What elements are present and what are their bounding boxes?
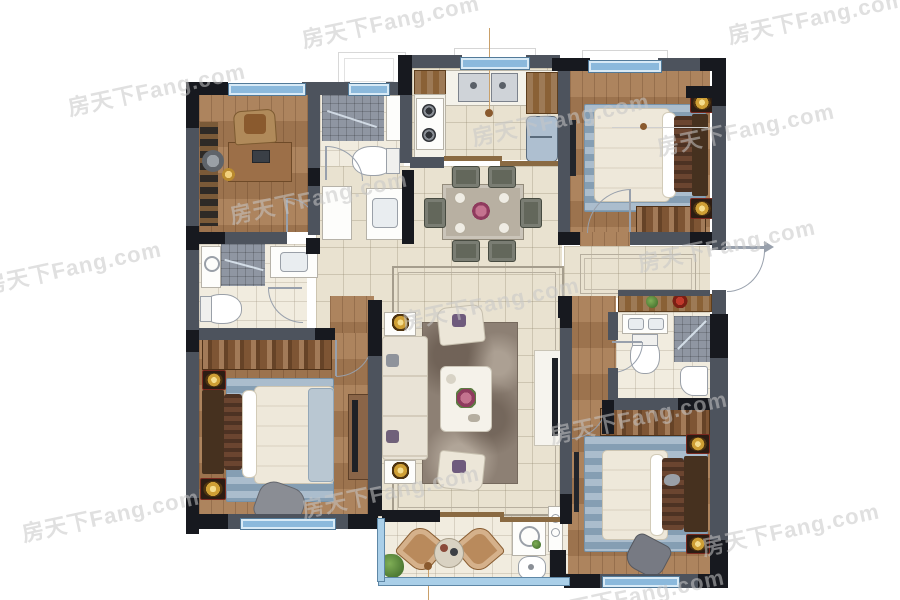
wall-kitchen-bottom (410, 157, 444, 168)
toilet-tank (200, 296, 212, 322)
entrance-door-swing-arc (727, 250, 765, 292)
bedside-lamp (686, 534, 710, 554)
headboard (684, 456, 708, 532)
chair-throw (244, 114, 266, 134)
place-setting (498, 192, 510, 204)
bedside-lamp (202, 370, 226, 390)
wall-tv (570, 120, 576, 176)
potted-plant (646, 296, 658, 308)
bedside-lamp (690, 198, 714, 219)
table-decor (468, 414, 480, 422)
armchair-pillow (452, 314, 466, 327)
washing-machine-door (204, 256, 220, 272)
wall-end-block (308, 168, 320, 186)
sofa-pillow (386, 430, 399, 443)
headboard (202, 390, 224, 474)
dining-chair (452, 166, 480, 188)
console-shelf (618, 294, 712, 312)
laptop (252, 150, 270, 163)
dining-chair (424, 198, 446, 228)
refrigerator (526, 116, 558, 162)
fur-pillows (224, 394, 242, 470)
wall-end-block (690, 232, 712, 245)
wall-living-corridor (560, 326, 572, 498)
leader-dot (424, 562, 432, 570)
stove-burner (422, 128, 436, 142)
wall-end-block (306, 238, 320, 254)
wall-bath-right-top (618, 290, 710, 296)
sink-drain (470, 82, 477, 89)
entry-mat-border-inner (584, 258, 692, 290)
wall-corner-block (712, 58, 726, 106)
pendant-leader-dot (485, 109, 493, 117)
wall-master-top (199, 328, 321, 340)
dining-chair (452, 240, 480, 262)
wall-end-block (199, 232, 225, 244)
wall-end-block (368, 490, 382, 516)
floor-plan: 房天下Fang.com房天下Fang.com房天下Fang.com房天下Fang… (0, 0, 900, 600)
pendant-leader-line (489, 28, 490, 112)
bath-storage-column (322, 186, 352, 240)
wall-right-exterior-upper (712, 104, 726, 250)
watermark-text: 房天下Fang.com (19, 480, 203, 549)
vanity-basin (648, 318, 664, 330)
bookshelf (200, 122, 218, 226)
fur-pillows (662, 458, 684, 530)
wall-bedroom-bottom (630, 232, 690, 245)
wall-dining-divider (402, 170, 414, 244)
bedroom-bottom-right-window (602, 576, 680, 588)
vanity-basin (280, 252, 308, 272)
wall-right-exterior (712, 290, 726, 316)
entrance-door-arrow (764, 241, 774, 253)
bedside-lamp (200, 478, 226, 500)
wall-left-exterior (186, 82, 199, 534)
gold-table-lamp (222, 168, 235, 181)
bed-roll-pillow (242, 390, 257, 478)
bed-throw (308, 388, 334, 482)
balcony-glazing-left (377, 518, 385, 582)
vanity-basin (628, 318, 644, 330)
master-window (240, 518, 336, 530)
watermark-text: 房天下Fang.com (299, 0, 483, 54)
entrance-door-leaf (726, 246, 766, 249)
sink-drain (499, 82, 506, 89)
wall-tv (574, 452, 579, 512)
wall-corner-block (186, 330, 199, 352)
wall-corner-block (186, 82, 199, 128)
wall-corner-block (710, 314, 728, 358)
wall-top (302, 82, 350, 95)
gold-lamp (392, 462, 409, 479)
wall-corner-block (186, 226, 199, 250)
bedroom-top-right-window (588, 60, 662, 73)
wall-end-block (560, 300, 572, 328)
balcony-sliding-door (440, 512, 504, 517)
wall-kitchen-left (400, 95, 412, 163)
dining-chair (488, 240, 516, 262)
table-decor (446, 374, 456, 384)
wall-bedroom-top (658, 58, 702, 71)
toilet-tank (386, 148, 400, 174)
wall-corner-block (186, 514, 228, 529)
dining-chair (520, 198, 542, 228)
wall-end-block (382, 510, 440, 522)
bed-decor (664, 474, 680, 486)
centerpiece-flowers (472, 202, 490, 220)
bathroom-top-window (348, 83, 390, 96)
kitchen-corner-cabinet (526, 72, 558, 114)
place-setting (454, 192, 466, 204)
wall-bedroom-left (558, 71, 570, 232)
armchair-pillow (452, 460, 466, 473)
refrigerator-handle (530, 136, 552, 138)
wall-end-block (678, 398, 710, 410)
wall-corner-block (698, 574, 728, 588)
balcony-glazing-bottom (378, 577, 570, 586)
watermark-text: 房天下Fang.com (725, 0, 900, 50)
kitchen-sliding-door (500, 161, 558, 166)
wardrobe (600, 408, 710, 436)
wall-end-block (602, 400, 614, 434)
wall-end-block (368, 300, 382, 330)
wall-end-block (368, 330, 382, 356)
wall-living-master (368, 354, 382, 492)
wall-tv (352, 400, 358, 472)
place-setting (498, 222, 510, 234)
leader-line (612, 127, 708, 128)
bedroom-top-right-threshold (580, 232, 630, 246)
dining-chair (488, 166, 516, 188)
tea-table (434, 538, 464, 568)
basin-drain (528, 564, 534, 570)
kitchen-sliding-door (444, 156, 502, 161)
wall-bath-right-left (608, 312, 618, 340)
wall-end-block (550, 550, 566, 578)
leader-dot (640, 123, 647, 130)
wall-end-block (686, 86, 714, 98)
place-setting (454, 222, 466, 234)
wall-corner-block (348, 514, 378, 529)
ac-platform-inner-outline (344, 58, 394, 82)
wall-tv (552, 358, 558, 436)
small-plant (532, 540, 541, 549)
wall-bath-right-left (608, 368, 618, 402)
wall-corner-block (710, 540, 728, 578)
red-flowers (672, 294, 688, 308)
wardrobe (202, 336, 332, 370)
tea-cup (450, 548, 458, 556)
bed (594, 108, 670, 202)
watermark-text: 房天下Fang.com (0, 232, 164, 301)
wall-corner-block (552, 58, 590, 71)
wash-basin (680, 366, 708, 396)
stove-burner (422, 104, 436, 118)
wall-study-bath-divider (308, 95, 320, 235)
wall-corner-block (398, 55, 412, 95)
kitchen-window (460, 57, 530, 70)
flower-centerpiece (456, 388, 476, 408)
bowl-chair (202, 150, 224, 172)
study-window (228, 83, 306, 96)
wall-right-exterior-lower (710, 356, 728, 542)
heater-knob (551, 528, 560, 537)
bedside-lamp (686, 434, 710, 454)
vanity-basin (372, 198, 398, 228)
wall-end-block (560, 494, 572, 524)
wall-end-block (315, 328, 335, 340)
wall-end-block (558, 232, 580, 245)
gold-lamp (392, 314, 409, 331)
sofa-pillow (386, 354, 399, 367)
wall-kitchen-top (410, 55, 462, 68)
tea-cup (440, 544, 448, 552)
balcony-sliding-door (500, 517, 564, 522)
